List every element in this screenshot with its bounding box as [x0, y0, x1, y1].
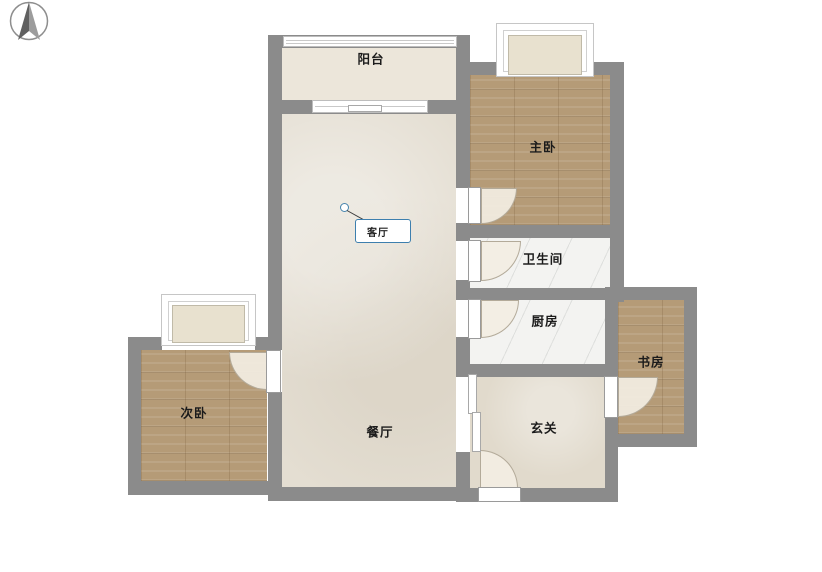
- dining-room-label: 餐厅: [366, 422, 393, 441]
- second-bedroom-bay-window-sill: [172, 305, 245, 343]
- wall: [456, 288, 624, 300]
- study-door[interactable]: [604, 376, 618, 418]
- master-bedroom-door[interactable]: [468, 187, 481, 224]
- wall: [268, 487, 456, 501]
- wall: [684, 287, 697, 447]
- wall: [128, 337, 162, 350]
- wall: [456, 364, 618, 377]
- balcony-label: 阳台: [357, 49, 384, 68]
- hall-sliding-door-leaf[interactable]: [468, 374, 477, 414]
- compass-north-icon: [5, 0, 53, 51]
- kitchen-label: 厨房: [531, 311, 558, 330]
- living-room-callout[interactable]: 客厅: [355, 219, 411, 243]
- entrance-label: 玄关: [530, 418, 557, 437]
- balcony-sliding-door-leaf: [348, 105, 382, 112]
- wall: [605, 287, 618, 377]
- entry-door[interactable]: [478, 487, 521, 502]
- master-bedroom-label: 主卧: [529, 137, 556, 156]
- wall: [456, 225, 624, 238]
- wall: [255, 337, 282, 350]
- study-label: 书房: [637, 352, 664, 371]
- floor-plan-canvas: 阳台 主卧 卫生间 厨房 书房 玄关 次卧 餐厅 客厅: [0, 0, 822, 572]
- wall: [128, 337, 141, 495]
- wall: [268, 100, 282, 350]
- kitchen-door[interactable]: [468, 299, 481, 339]
- master-bay-window-sill: [508, 35, 582, 75]
- balcony-window[interactable]: [283, 36, 457, 47]
- bathroom-door[interactable]: [468, 240, 481, 282]
- living-room-label: 客厅: [367, 224, 389, 239]
- second-bedroom-label: 次卧: [180, 403, 207, 422]
- bathroom-label: 卫生间: [523, 249, 564, 268]
- wall: [456, 100, 470, 188]
- wall: [605, 434, 697, 447]
- hall-sliding-door-leaf[interactable]: [472, 412, 481, 452]
- wall: [610, 62, 624, 302]
- wall: [268, 392, 282, 495]
- second-bedroom-door[interactable]: [266, 350, 281, 393]
- wall: [456, 488, 478, 502]
- wall: [128, 481, 282, 495]
- wall: [520, 488, 618, 502]
